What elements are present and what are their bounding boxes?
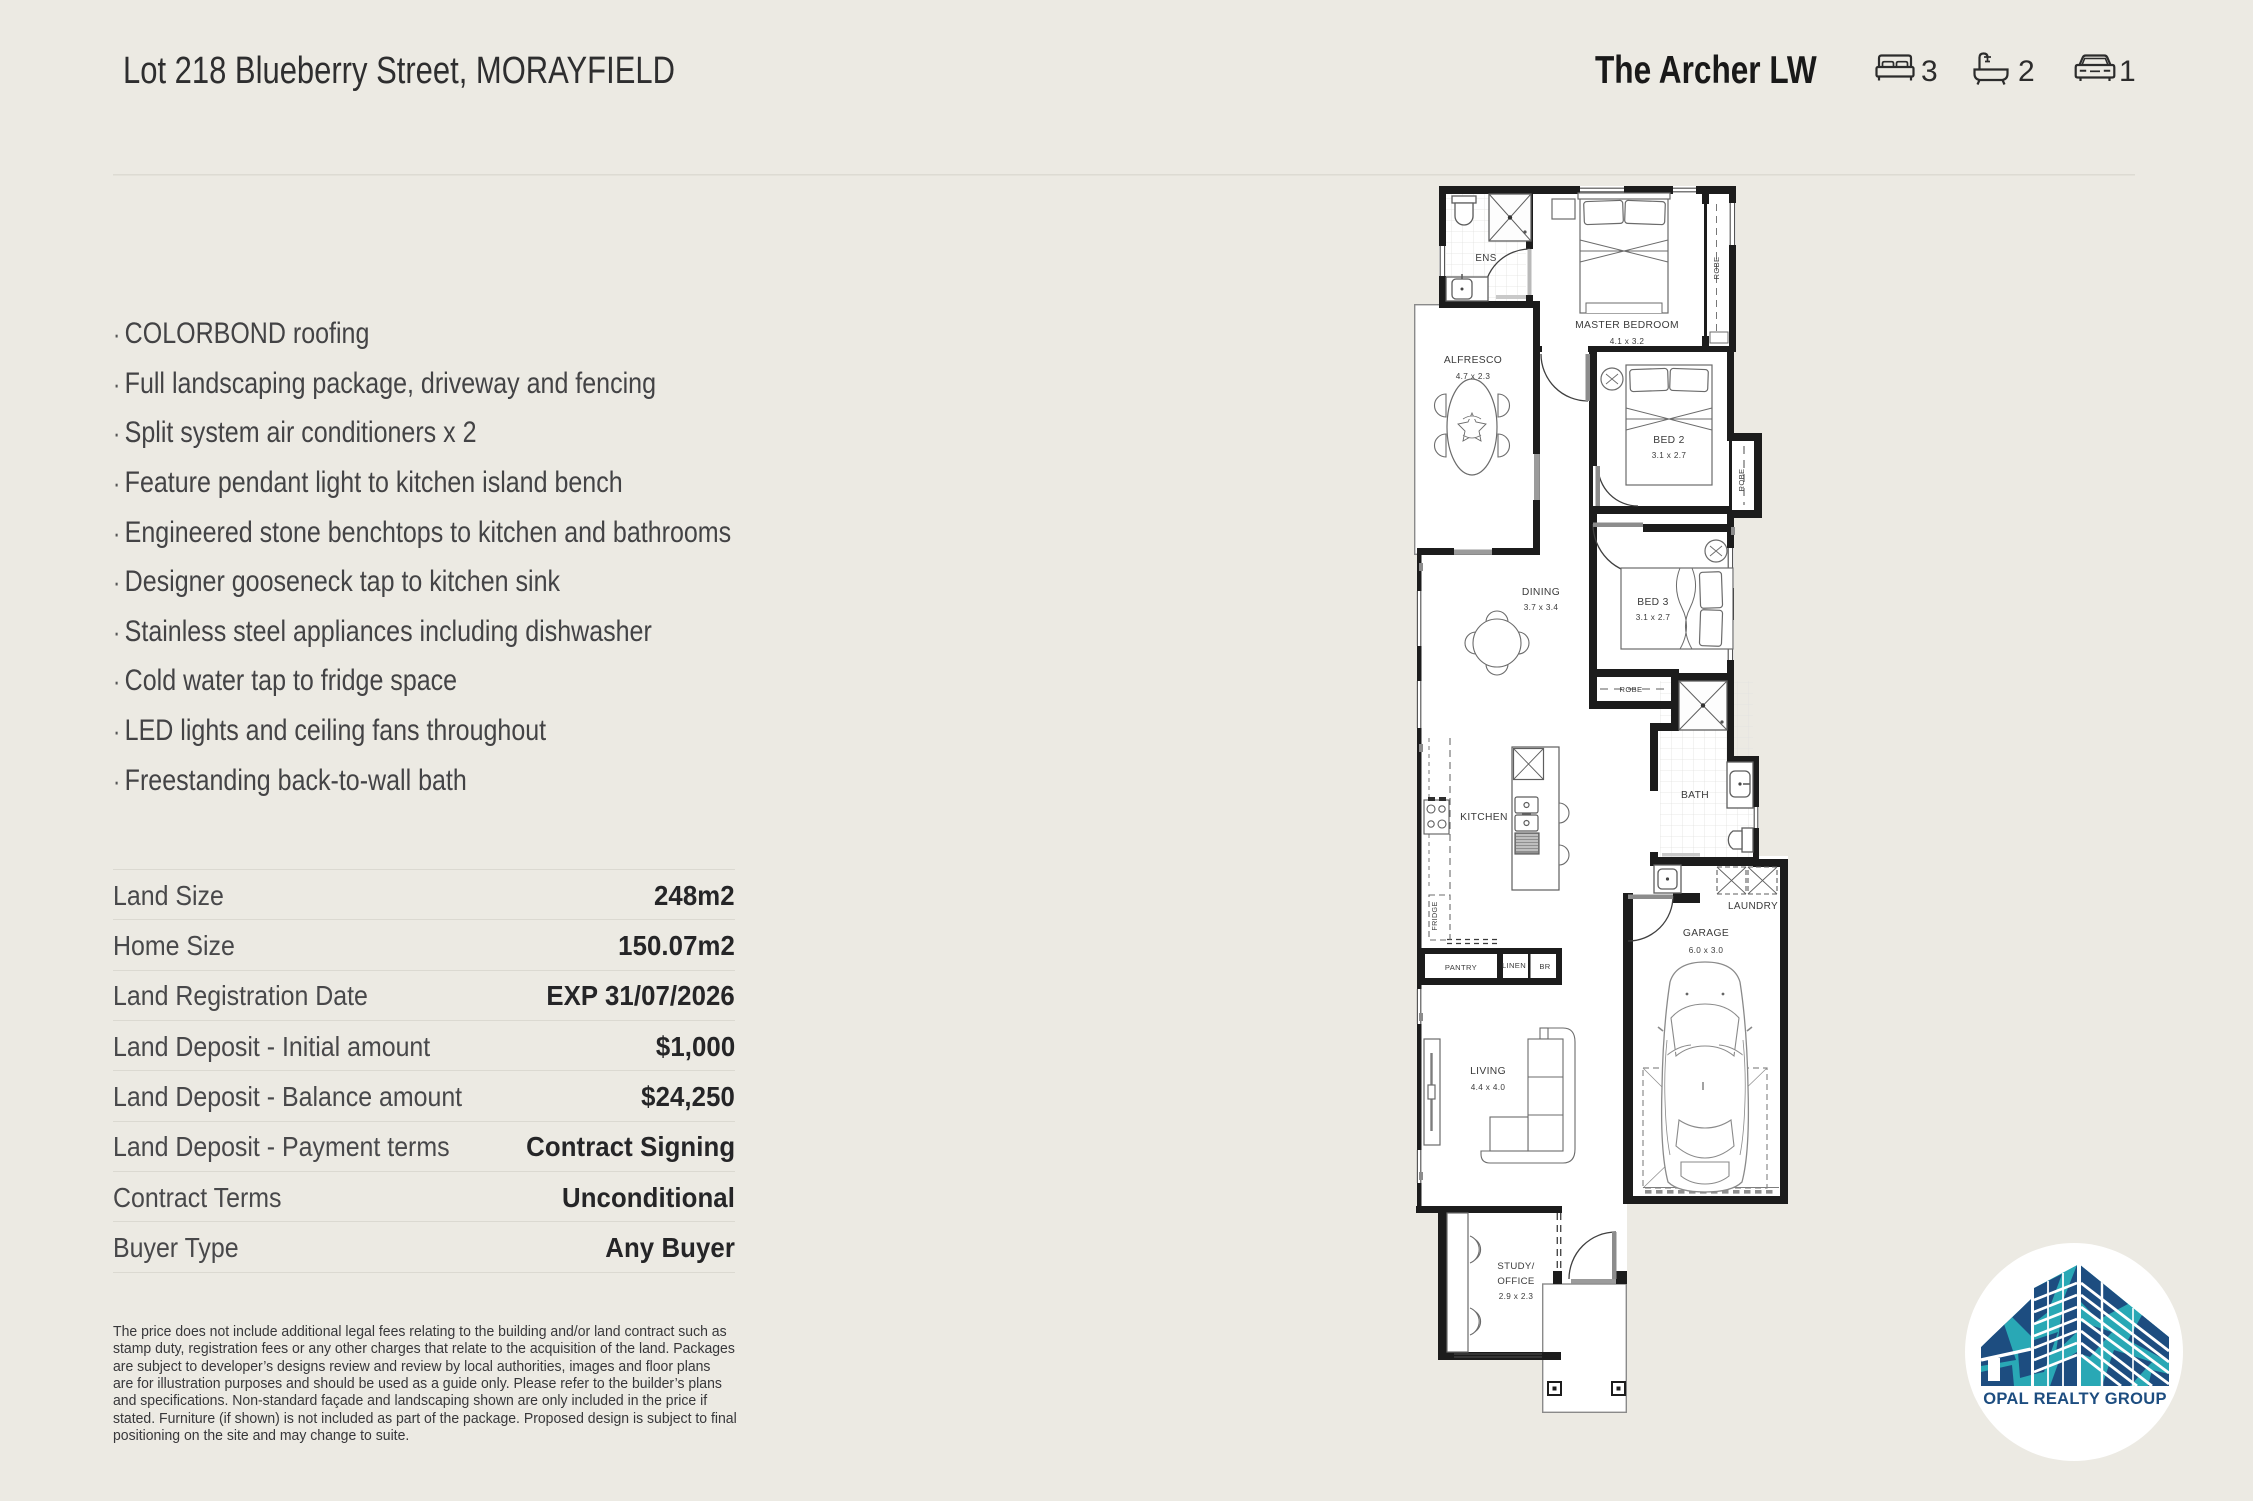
svg-text:LIVING: LIVING (1470, 1066, 1506, 1077)
svg-text:STUDY/: STUDY/ (1497, 1261, 1534, 1272)
svg-text:3.1 x 2.7: 3.1 x 2.7 (1652, 451, 1687, 460)
svg-text:4.7 x 2.3: 4.7 x 2.3 (1456, 372, 1491, 381)
svg-text:6.0 x 3.0: 6.0 x 3.0 (1689, 946, 1724, 955)
svg-text:PANTRY: PANTRY (1445, 963, 1477, 972)
svg-text:DINING: DINING (1522, 587, 1560, 598)
svg-text:KITCHEN: KITCHEN (1460, 812, 1508, 823)
svg-text:ROBE: ROBE (1737, 469, 1746, 492)
svg-text:3.1 x 2.7: 3.1 x 2.7 (1636, 613, 1671, 622)
svg-text:BED 3: BED 3 (1637, 597, 1669, 608)
svg-text:FRIDGE: FRIDGE (1430, 901, 1439, 930)
svg-text:4.4 x 4.0: 4.4 x 4.0 (1471, 1083, 1506, 1092)
svg-text:BATH: BATH (1681, 790, 1709, 801)
svg-text:2.9 x 2.3: 2.9 x 2.3 (1499, 1292, 1534, 1301)
svg-text:BED 2: BED 2 (1653, 435, 1685, 446)
svg-text:OFFICE: OFFICE (1497, 1276, 1534, 1287)
svg-text:ENS: ENS (1475, 253, 1496, 264)
svg-text:ROBE: ROBE (1712, 257, 1721, 280)
svg-text:4.1 x 3.2: 4.1 x 3.2 (1610, 337, 1645, 346)
svg-text:ROBE: ROBE (1620, 685, 1643, 694)
svg-text:MASTER BEDROOM: MASTER BEDROOM (1575, 320, 1679, 331)
svg-text:3.7 x 3.4: 3.7 x 3.4 (1524, 603, 1559, 612)
svg-text:LAUNDRY: LAUNDRY (1728, 901, 1778, 912)
svg-text:GARAGE: GARAGE (1683, 928, 1729, 939)
svg-text:ALFRESCO: ALFRESCO (1444, 355, 1502, 366)
svg-text:OPAL REALTY GROUP: OPAL REALTY GROUP (1983, 1390, 2167, 1408)
svg-text:BR: BR (1539, 962, 1550, 971)
svg-text:LINEN: LINEN (1502, 961, 1526, 970)
